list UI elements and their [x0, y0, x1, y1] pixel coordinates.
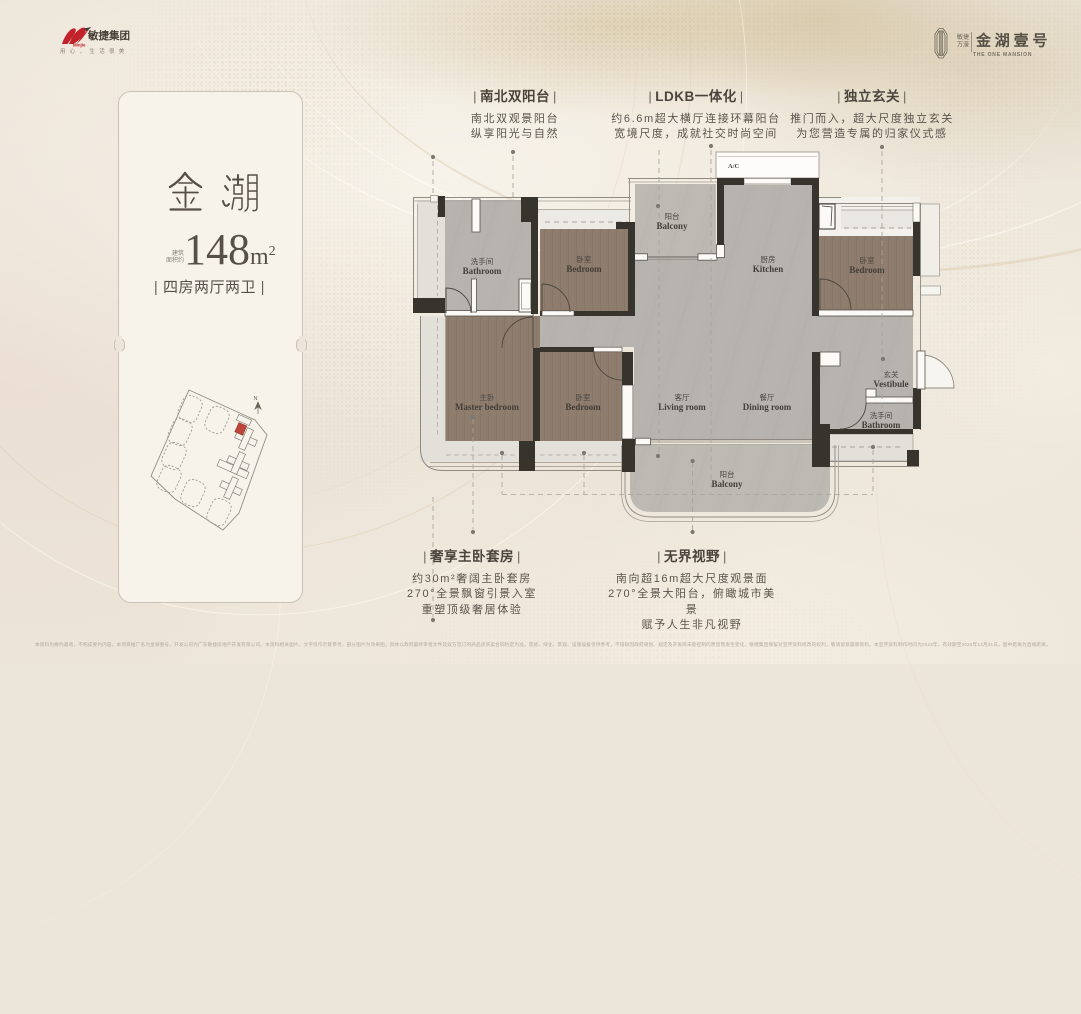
svg-text:Bedroom: Bedroom — [849, 265, 885, 275]
svg-text:厨房: 厨房 — [761, 254, 776, 264]
svg-text:洗手间: 洗手间 — [471, 256, 494, 266]
svg-text:餐厅: 餐厅 — [760, 393, 775, 402]
svg-text:阳台: 阳台 — [720, 469, 735, 479]
svg-text:Bedroom: Bedroom — [566, 264, 602, 274]
svg-text:卧室: 卧室 — [576, 392, 591, 402]
svg-text:Bedroom: Bedroom — [565, 402, 601, 412]
svg-text:Bathroom: Bathroom — [463, 266, 502, 276]
svg-text:客厅: 客厅 — [675, 392, 690, 402]
svg-text:Vestibule: Vestibule — [873, 379, 908, 389]
svg-text:Living room: Living room — [658, 402, 706, 412]
svg-text:卧室: 卧室 — [860, 255, 875, 265]
svg-text:A/C: A/C — [728, 163, 740, 170]
svg-text:Master bedroom: Master bedroom — [455, 402, 519, 412]
svg-text:Balcony: Balcony — [656, 221, 688, 231]
svg-text:阳台: 阳台 — [665, 211, 680, 221]
svg-text:Kitchen: Kitchen — [753, 264, 784, 274]
svg-text:卧室: 卧室 — [577, 254, 592, 264]
svg-text:玄关: 玄关 — [884, 369, 899, 379]
svg-text:Dining room: Dining room — [743, 402, 792, 412]
svg-text:Balcony: Balcony — [711, 479, 743, 489]
svg-text:主卧: 主卧 — [480, 392, 495, 402]
svg-text:Bathroom: Bathroom — [862, 420, 901, 430]
svg-text:洗手间: 洗手间 — [870, 410, 893, 420]
